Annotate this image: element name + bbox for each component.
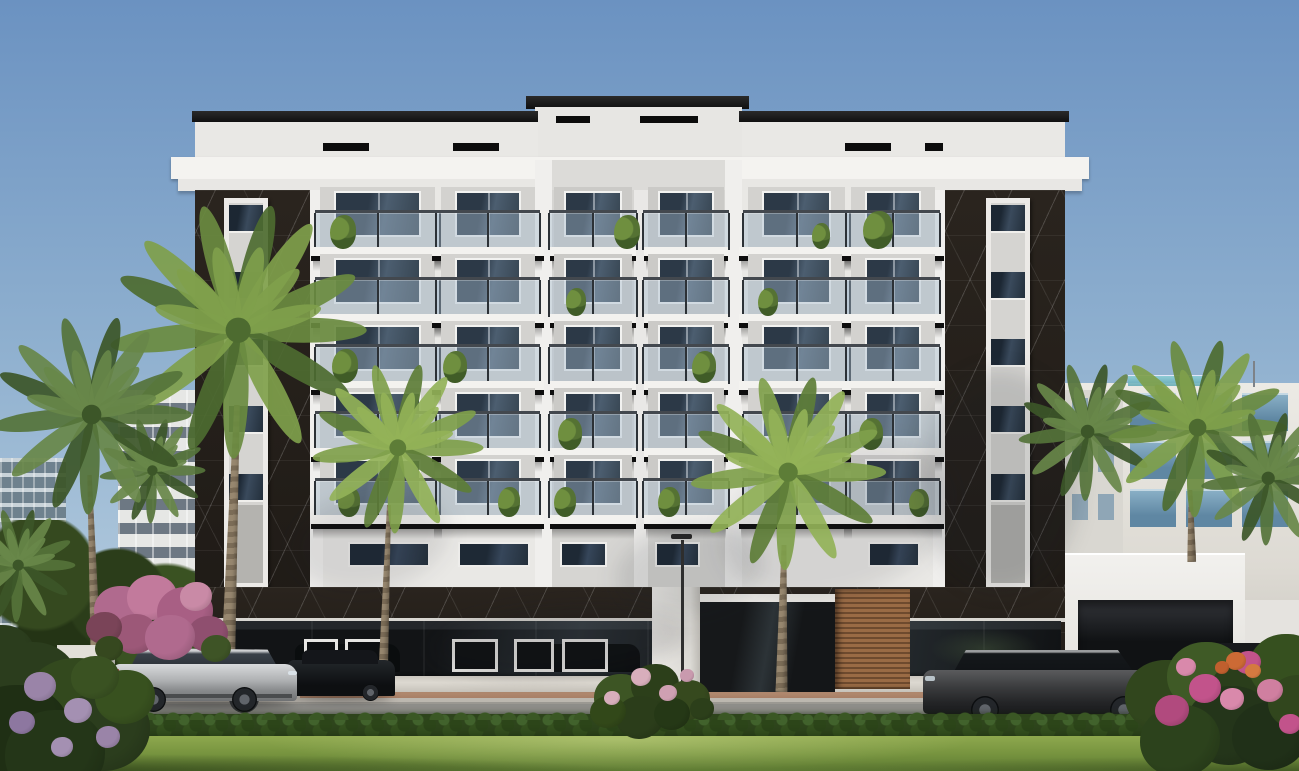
railing-post bbox=[539, 280, 541, 317]
railing-post bbox=[642, 280, 644, 317]
railing-post bbox=[939, 347, 941, 384]
balcony-plant bbox=[566, 288, 586, 316]
railing-post bbox=[642, 481, 644, 518]
railing-post bbox=[728, 280, 730, 317]
strip-window-pane bbox=[991, 272, 1025, 300]
balcony-plant bbox=[498, 487, 520, 517]
bush-blob bbox=[1189, 674, 1221, 703]
bush-blob bbox=[96, 726, 120, 748]
lawn bbox=[0, 736, 1299, 771]
railing-post bbox=[487, 213, 489, 250]
parapet-left bbox=[195, 122, 538, 160]
entrance-glass bbox=[700, 602, 835, 692]
suv-headlight bbox=[288, 671, 297, 675]
palm-canopy bbox=[1189, 399, 1299, 557]
balcony-glass-railing bbox=[436, 277, 540, 317]
railing-post bbox=[592, 213, 594, 250]
entrance-wood-slat-panel bbox=[835, 589, 910, 689]
railing-post bbox=[642, 414, 644, 451]
balcony-glass-railing bbox=[643, 277, 729, 317]
railing-post bbox=[548, 414, 550, 451]
railing-post bbox=[939, 213, 941, 250]
railing-post bbox=[636, 481, 638, 518]
railing-post bbox=[539, 414, 541, 451]
parapet-vent bbox=[453, 143, 499, 151]
railing-post bbox=[642, 347, 644, 384]
railing-post bbox=[487, 280, 489, 317]
balcony-plant bbox=[614, 215, 640, 249]
railing-post bbox=[592, 414, 594, 451]
railing-post bbox=[539, 347, 541, 384]
railing-post bbox=[548, 213, 550, 250]
mezzanine-window bbox=[560, 542, 607, 567]
tower-parapet bbox=[535, 107, 742, 160]
sedan-cabin bbox=[302, 650, 378, 664]
railing-post bbox=[845, 213, 847, 250]
railing-post bbox=[685, 280, 687, 317]
railing-post bbox=[636, 347, 638, 384]
railing-post bbox=[728, 213, 730, 250]
railing-post bbox=[742, 213, 744, 250]
balcony-glass-railing bbox=[436, 210, 540, 250]
railing-post bbox=[796, 280, 798, 317]
bush-blob bbox=[1220, 688, 1244, 710]
roof-cap-right bbox=[739, 111, 1069, 122]
parapet-right bbox=[742, 122, 1065, 160]
balcony-glass-railing bbox=[846, 277, 940, 317]
balcony-plant bbox=[554, 487, 576, 517]
strip-window-pane bbox=[991, 205, 1025, 233]
railing-post bbox=[939, 280, 941, 317]
railing-post bbox=[592, 280, 594, 317]
bush-blob bbox=[1155, 695, 1189, 726]
railing-post bbox=[845, 280, 847, 317]
balcony-shadow bbox=[552, 529, 634, 539]
balcony-plant bbox=[863, 211, 893, 249]
railing-post bbox=[539, 213, 541, 250]
bush-blob bbox=[1279, 714, 1299, 734]
railing-post bbox=[642, 213, 644, 250]
railing-post bbox=[592, 481, 594, 518]
railing-post bbox=[685, 213, 687, 250]
palm-canopy bbox=[673, 357, 903, 587]
suv-headlight bbox=[925, 676, 935, 681]
balcony-glass-railing bbox=[549, 344, 637, 384]
railing-post bbox=[592, 347, 594, 384]
balcony-plant bbox=[558, 418, 582, 450]
tower-vent bbox=[556, 116, 590, 123]
roof-cap-left bbox=[192, 111, 538, 122]
palm-canopy bbox=[297, 347, 499, 549]
railing-post bbox=[636, 414, 638, 451]
railing-post bbox=[796, 213, 798, 250]
balcony-glass-railing bbox=[643, 210, 729, 250]
railing-post bbox=[548, 347, 550, 384]
balcony-glass-railing bbox=[743, 210, 850, 250]
railing-post bbox=[548, 481, 550, 518]
balcony-glass-railing bbox=[846, 210, 940, 250]
tower-vent bbox=[640, 116, 698, 123]
railing-post bbox=[548, 280, 550, 317]
railing-post bbox=[742, 280, 744, 317]
scene-architectural-render bbox=[0, 0, 1299, 771]
sedan-wheel bbox=[362, 684, 379, 701]
parapet-vent bbox=[845, 143, 891, 151]
balcony-glass-railing bbox=[549, 277, 637, 317]
palm-canopy bbox=[0, 297, 210, 532]
bush-blob bbox=[51, 737, 73, 757]
railing-post bbox=[435, 280, 437, 317]
parapet-vent bbox=[925, 143, 943, 151]
railing-post bbox=[636, 280, 638, 317]
bush-blob bbox=[690, 698, 714, 720]
railing-post bbox=[892, 280, 894, 317]
parapet-vent bbox=[323, 143, 369, 151]
bush-blob bbox=[180, 582, 212, 611]
railing-post bbox=[539, 481, 541, 518]
bush-blob bbox=[24, 672, 56, 701]
railing-post bbox=[435, 213, 437, 250]
bush-blob bbox=[1215, 661, 1229, 674]
balcony-plant bbox=[812, 223, 830, 249]
balcony-plant bbox=[758, 288, 778, 316]
bush-blob bbox=[680, 669, 694, 682]
